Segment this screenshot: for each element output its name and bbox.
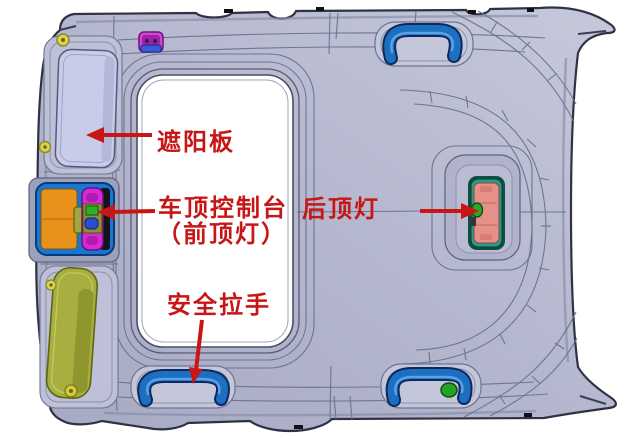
console-switch-top bbox=[86, 193, 98, 202]
console-switch-bottom bbox=[86, 236, 98, 245]
label-roof-console-line2: （前顶灯） bbox=[157, 220, 287, 248]
label-rear-dome-light: 后顶灯 bbox=[302, 196, 380, 223]
front-dome-lens-blue bbox=[85, 218, 98, 229]
label-grab-handle: 安全拉手 bbox=[167, 291, 271, 319]
front-dome-lamp-green bbox=[86, 206, 98, 215]
headliner-diagram: 遮阳板 车顶控制台 （前顶灯） 后顶灯 安全拉手 bbox=[0, 0, 640, 434]
retainer-clip-magenta bbox=[139, 32, 163, 52]
arrow-shaft bbox=[113, 211, 155, 212]
overhead-console-front-dome-light bbox=[36, 183, 114, 255]
cad-diagram-viewport: 遮阳板 车顶控制台 （前顶灯） 后顶灯 安全拉手 bbox=[0, 0, 640, 434]
visor-clip-pin bbox=[61, 38, 65, 42]
clip-pin4 bbox=[69, 389, 73, 393]
label-roof-console-line1: 车顶控制台 bbox=[158, 194, 288, 222]
passenger-sun-visor bbox=[55, 49, 118, 168]
label-sun-visor: 遮阳板 bbox=[157, 128, 235, 156]
clip-pin3 bbox=[49, 283, 52, 286]
visor-clip-pin2 bbox=[43, 145, 47, 149]
handle-clip-green bbox=[441, 383, 457, 397]
